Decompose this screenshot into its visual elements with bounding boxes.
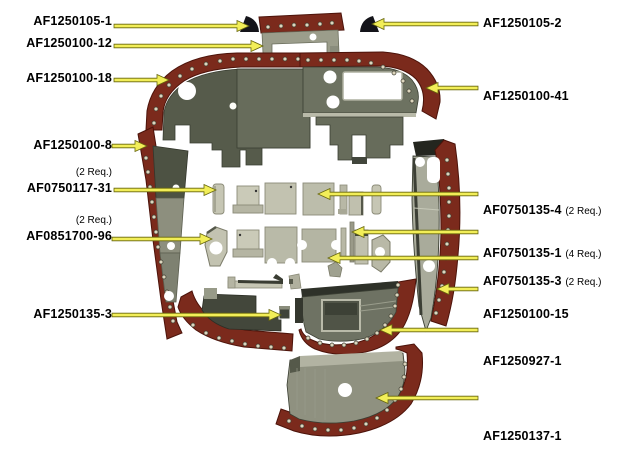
part-label-af1250105-1: AF1250105-1 [33, 14, 112, 29]
small-square-clip-icon [279, 306, 290, 319]
arrow-af1250100-18 [114, 75, 169, 86]
part-label-af1250135-3: AF1250135-3 [33, 307, 112, 322]
req-note-af0851700-96: (2 Req.) [76, 215, 112, 226]
part-label-af1250100-41: AF1250100-41 [483, 89, 569, 104]
part-label-af0750117-31: AF0750117-31 [27, 181, 112, 196]
arrow-af1250105-1 [114, 21, 249, 32]
part-label-af0750135-4: AF0750135-4 (2 Req.) [483, 203, 601, 219]
parts-diagram: AF1250105-1 AF1250100-12 AF1250100-18 AF… [0, 0, 627, 461]
bottom-center-panel-icon [295, 262, 416, 354]
bottom-left-panel-icon [178, 288, 293, 351]
part-label-af1250105-2: AF1250105-2 [483, 16, 562, 31]
small-clip-left-icon [213, 184, 224, 214]
part-label-af1250927-1: AF1250927-1 [483, 354, 562, 369]
hat-bracket-2-icon [233, 230, 263, 257]
hex-plate-left-icon [205, 227, 227, 266]
small-clip-right-icon [372, 185, 381, 214]
part-label-af1250100-8: AF1250100-8 [33, 138, 112, 153]
square-plate-icon [265, 183, 296, 214]
small-clip-bottom-icon [289, 274, 301, 289]
part-label-af1250100-12: AF1250100-12 [26, 36, 112, 51]
arrow-af1250105-2 [372, 19, 478, 30]
hex-plate-right-icon [372, 235, 390, 272]
req-note-af0750135-4: (2 Req.) [565, 206, 601, 217]
req-note-af0750135-1: (4 Req.) [565, 249, 601, 260]
arrow-af1250100-12 [114, 41, 263, 52]
channel-bracket-icon [228, 274, 283, 288]
arrow-af1250100-41 [426, 83, 478, 94]
part-label-af0750135-1: AF0750135-1 (4 Req.) [483, 246, 601, 262]
part-label-af1250137-1: AF1250137-1 [483, 429, 562, 444]
thin-strip-icon [338, 185, 347, 214]
part-label-af0750135-3: AF0750135-3 (2 Req.) [483, 274, 601, 290]
part-label-af1250100-15: AF1250100-15 [483, 307, 569, 322]
req-note-af0750117-31: (2 Req.) [76, 167, 112, 178]
right-side-strip-icon [412, 139, 460, 331]
part-label-af0851700-96: AF0851700-96 [26, 229, 112, 244]
part-label-af1250100-18: AF1250100-18 [26, 71, 112, 86]
bottom-panel-icon [276, 344, 423, 436]
req-note-af0750135-3: (2 Req.) [565, 277, 601, 288]
notched-plate-left-icon [265, 227, 297, 268]
hat-bracket-icon [233, 186, 263, 213]
